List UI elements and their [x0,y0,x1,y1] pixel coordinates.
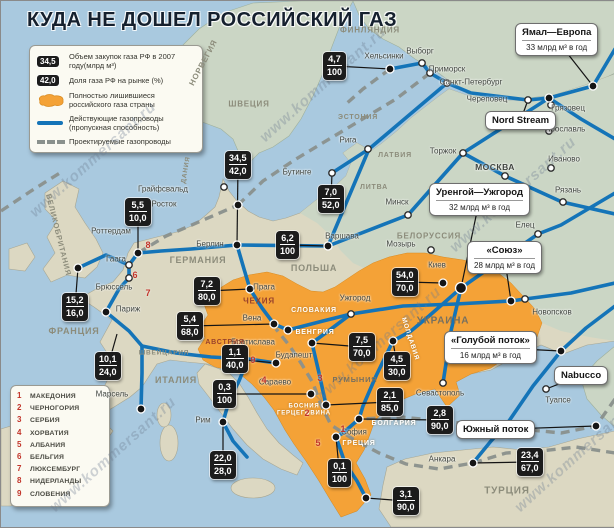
country-label: ВЕНГРИЯ [295,329,334,337]
red-marker: 6 [132,270,137,280]
share-value: 28,0 [214,466,232,476]
country-label: ТУРЦИЯ [484,486,529,497]
data-box: 34,542,0 [225,151,251,179]
share-value: 80,0 [198,292,216,302]
data-box: 6,2100 [276,231,299,259]
data-box: 3,190,0 [393,487,419,515]
city-label: Новопсков [532,308,571,317]
country-label: ШВЕЦИЯ [228,101,269,110]
city-label: Хельсинки [364,52,403,61]
data-box: 2,185,0 [377,388,403,416]
data-box: 1,140,0 [222,345,248,373]
list-item-name: СЕРБИЯ [30,417,60,424]
purchase-value: 2,8 [431,408,449,420]
callout-capacity: 32 млрд м³ в год [436,200,523,212]
data-box: 2,890,0 [427,406,453,434]
city-label: Гаага [106,255,126,264]
watermark: www.kommersant.ru [256,23,389,145]
red-marker: 9 [250,355,255,365]
red-marker: 7 [145,288,150,298]
purchase-value: 4,7 [327,54,342,66]
city-label: Брюссель [96,283,133,292]
country-label: ШВЕЙЦАРИЯ [139,349,190,356]
data-box: 22,028,0 [210,451,236,479]
city-label: Туапсе [545,396,571,405]
city-label: Торжок [430,147,456,156]
country-label: ЛАТВИЯ [378,152,412,160]
purchase-value: 22,0 [214,453,232,465]
city-label: Марсель [96,390,129,399]
legend-purchases-swatch: 34,5 [37,56,59,67]
purchase-value: 7,0 [322,187,340,199]
share-value: 42,0 [229,166,247,176]
city-label: Минск [385,198,408,207]
list-item-number: 6 [17,452,24,461]
city-label: Череповец [467,95,508,104]
share-value: 85,0 [381,403,399,413]
data-box: 10,124,0 [95,352,121,380]
city-label: Роттердам [91,227,131,236]
list-item: 4ХОРВАТИЯ [17,428,103,437]
country-label: ЛИТВА [360,184,388,192]
city-label: Выборг [406,47,433,56]
pipeline-callout-soyuz: «Союз»28 млрд м³ в год [467,241,542,274]
city-label: Санкт-Петербург [440,78,503,87]
purchase-value: 15,2 [66,295,84,307]
city-label: Грайфсвальд [138,185,188,194]
purchase-value: 1,1 [226,347,244,359]
list-item-number: 8 [17,476,24,485]
share-value: 100 [332,474,347,484]
data-box: 5,510,0 [125,198,151,226]
list-item: 3СЕРБИЯ [17,415,103,424]
list-item: 2ЧЕРНОГОРИЯ [17,403,103,412]
red-marker: 1 [340,424,345,434]
share-value: 100 [280,246,295,256]
callout-title: Nabucco [561,370,601,381]
share-value: 10,0 [129,213,147,223]
country-label: УКРАИНА [417,316,470,327]
city-label: Киев [428,261,446,270]
list-item-name: МАКЕДОНИЯ [30,393,76,400]
purchase-value: 0,3 [217,382,232,394]
share-value: 100 [217,395,232,405]
share-value: 67,0 [521,463,539,473]
data-box: 15,216,0 [62,293,88,321]
red-marker: 4 [261,375,266,385]
pipeline-callout-blue-stream: «Голубой поток»16 млрд м³ в год [444,331,537,364]
data-box: 23,467,0 [517,448,543,476]
city-label: Варшава [325,232,359,241]
callout-capacity: 28 млрд м³ в год [474,258,535,270]
list-item-name: ЛЮКСЕМБУРГ [30,466,80,473]
infographic-map: КУДА НЕ ДОШЕЛ РОССИЙСКИЙ ГАЗ 34,5 Объем … [0,0,614,528]
share-value: 40,0 [226,360,244,370]
country-label: ФРАНЦИЯ [48,327,99,337]
legend-cutoff-label: Полностью лишившиеся российского газа ст… [69,91,195,109]
legend-cutoff: Полностью лишившиеся российского газа ст… [37,91,195,109]
country-label: РУМЫНИЯ [333,376,378,384]
numbered-country-list: 1МАКЕДОНИЯ2ЧЕРНОГОРИЯ3СЕРБИЯ4ХОРВАТИЯ5АЛ… [10,385,110,507]
list-item-name: ЧЕРНОГОРИЯ [30,405,79,412]
pipeline-callout-yamal-europe: Ямал—Европа33 млрд м³ в год [515,23,598,56]
data-box: 0,3100 [213,380,236,408]
city-label: Рига [340,136,357,145]
list-item: 5АЛБАНИЯ [17,440,103,449]
callout-capacity: 16 млрд м³ в год [451,348,530,360]
list-item-number: 5 [17,440,24,449]
city-label: Прага [253,283,275,292]
purchase-value: 5,5 [129,200,147,212]
list-item-number: 3 [17,415,24,424]
purchase-value: 3,1 [397,489,415,501]
pipeline-callout-urengoy-uzhgorod: Уренгой—Ужгород32 млрд м³ в год [429,183,530,216]
share-value: 90,0 [431,421,449,431]
callout-title: «Союз» [474,245,535,256]
red-marker: 2 [304,408,309,418]
city-label: Ужгород [340,294,371,303]
city-label: Рим [195,416,210,425]
share-value: 24,0 [99,367,117,377]
share-value: 16,0 [66,308,84,318]
country-label: ДАНИЯ [180,156,192,184]
purchase-value: 7,5 [353,335,371,347]
city-label: Рязань [555,186,581,195]
share-value: 100 [327,67,342,77]
country-label: ГРЕЦИЯ [342,440,375,448]
legend-purchases-label: Объем закупок газа РФ в 2007 году(млрд м… [69,52,195,70]
share-value: 30,0 [388,367,406,377]
legend-share-swatch: 42,0 [37,75,59,86]
list-item-number: 9 [17,489,24,498]
pipeline-callout-south-stream: Южный поток [456,420,535,439]
purchase-value: 10,1 [99,354,117,366]
share-value: 70,0 [396,283,414,293]
city-label: Приморск [429,65,466,74]
city-label: Елец [515,221,534,230]
list-item-name: БЕЛЬГИЯ [30,454,64,461]
share-value: 68,0 [181,327,199,337]
city-label: Будапешт [276,351,313,360]
purchase-value: 2,1 [381,390,399,402]
data-box: 5,468,0 [177,312,203,340]
country-label: ЭСТОНИЯ [338,114,378,122]
city-label: Севастополь [416,389,464,398]
purchase-value: 7,2 [198,279,216,291]
data-box: 4,7100 [323,52,346,80]
red-marker: 5 [315,438,320,448]
list-item-number: 7 [17,464,24,473]
country-label: ПОЛЬША [291,264,337,274]
country-label: ВЕЛИКОБРИТАНИЯ [44,193,72,277]
country-label: СЛОВАКИЯ [291,307,337,315]
city-label: Иваново [548,155,580,164]
list-item: 1МАКЕДОНИЯ [17,391,103,400]
city-label: Берлин [196,240,223,249]
callout-title: Южный поток [463,424,528,435]
country-label: БЕЛОРУССИЯ [397,233,461,242]
city-label: Бутинге [283,168,312,177]
city-label: МОСКВА [475,162,515,172]
data-box: 0,1100 [328,459,351,487]
orange-blob-icon [37,93,65,108]
country-label: ФИНЛЯНДИЯ [340,27,400,36]
purchase-value: 0,1 [332,461,347,473]
share-value: 70,0 [353,348,371,358]
share-value: 52,0 [322,200,340,210]
country-label: ГЕРМАНИЯ [170,256,227,266]
red-marker: 8 [145,240,150,250]
legend-purchases: 34,5 Объем закупок газа РФ в 2007 году(м… [37,52,195,70]
share-value: 90,0 [397,502,415,512]
purchase-value: 54,0 [396,270,414,282]
purchase-value: 34,5 [229,153,247,165]
planned-pipeline-icon [37,140,65,144]
pipeline-callout-nabucco: Nabucco [554,366,608,385]
watermark: www.kommersant.ru [311,283,444,405]
city-label: Вена [243,314,262,323]
callout-title: «Голубой поток» [451,335,530,346]
list-item-number: 1 [17,391,24,400]
callout-title: Ямал—Европа [522,27,591,38]
country-label: ЧЕХИЯ [243,298,275,307]
callout-title: Nord Stream [492,115,549,126]
city-label: Грязовец [551,104,585,113]
data-box: 4,530,0 [384,352,410,380]
purchase-value: 23,4 [521,450,539,462]
city-label: Париж [116,305,140,314]
list-item-number: 4 [17,428,24,437]
data-box: 7,570,0 [349,333,375,361]
list-item: 6БЕЛЬГИЯ [17,452,103,461]
data-box: 54,070,0 [392,268,418,296]
city-label: Анкара [429,455,456,464]
legend-share-label: Доля газа РФ на рынке (%) [69,76,163,85]
active-pipeline-icon [37,121,63,125]
list-item-name: АЛБАНИЯ [30,442,65,449]
labels-layer: КУДА НЕ ДОШЕЛ РОССИЙСКИЙ ГАЗ 34,5 Объем … [1,1,614,527]
purchase-value: 6,2 [280,233,295,245]
callout-capacity: 33 млрд м³ в год [522,40,591,52]
list-item-number: 2 [17,403,24,412]
red-marker: 3 [317,373,322,383]
city-label: Росток [152,200,177,209]
list-item-name: ХОРВАТИЯ [30,430,69,437]
purchase-value: 4,5 [388,354,406,366]
data-box: 7,280,0 [194,277,220,305]
purchase-value: 5,4 [181,314,199,326]
country-label: БОЛГАРИЯ [372,420,417,428]
country-label: ИТАЛИЯ [155,376,197,386]
data-box: 7,052,0 [318,185,344,213]
legend-share: 42,0 Доля газа РФ на рынке (%) [37,75,195,86]
pipeline-callout-nord-stream: Nord Stream [485,111,556,130]
callout-title: Уренгой—Ужгород [436,187,523,198]
